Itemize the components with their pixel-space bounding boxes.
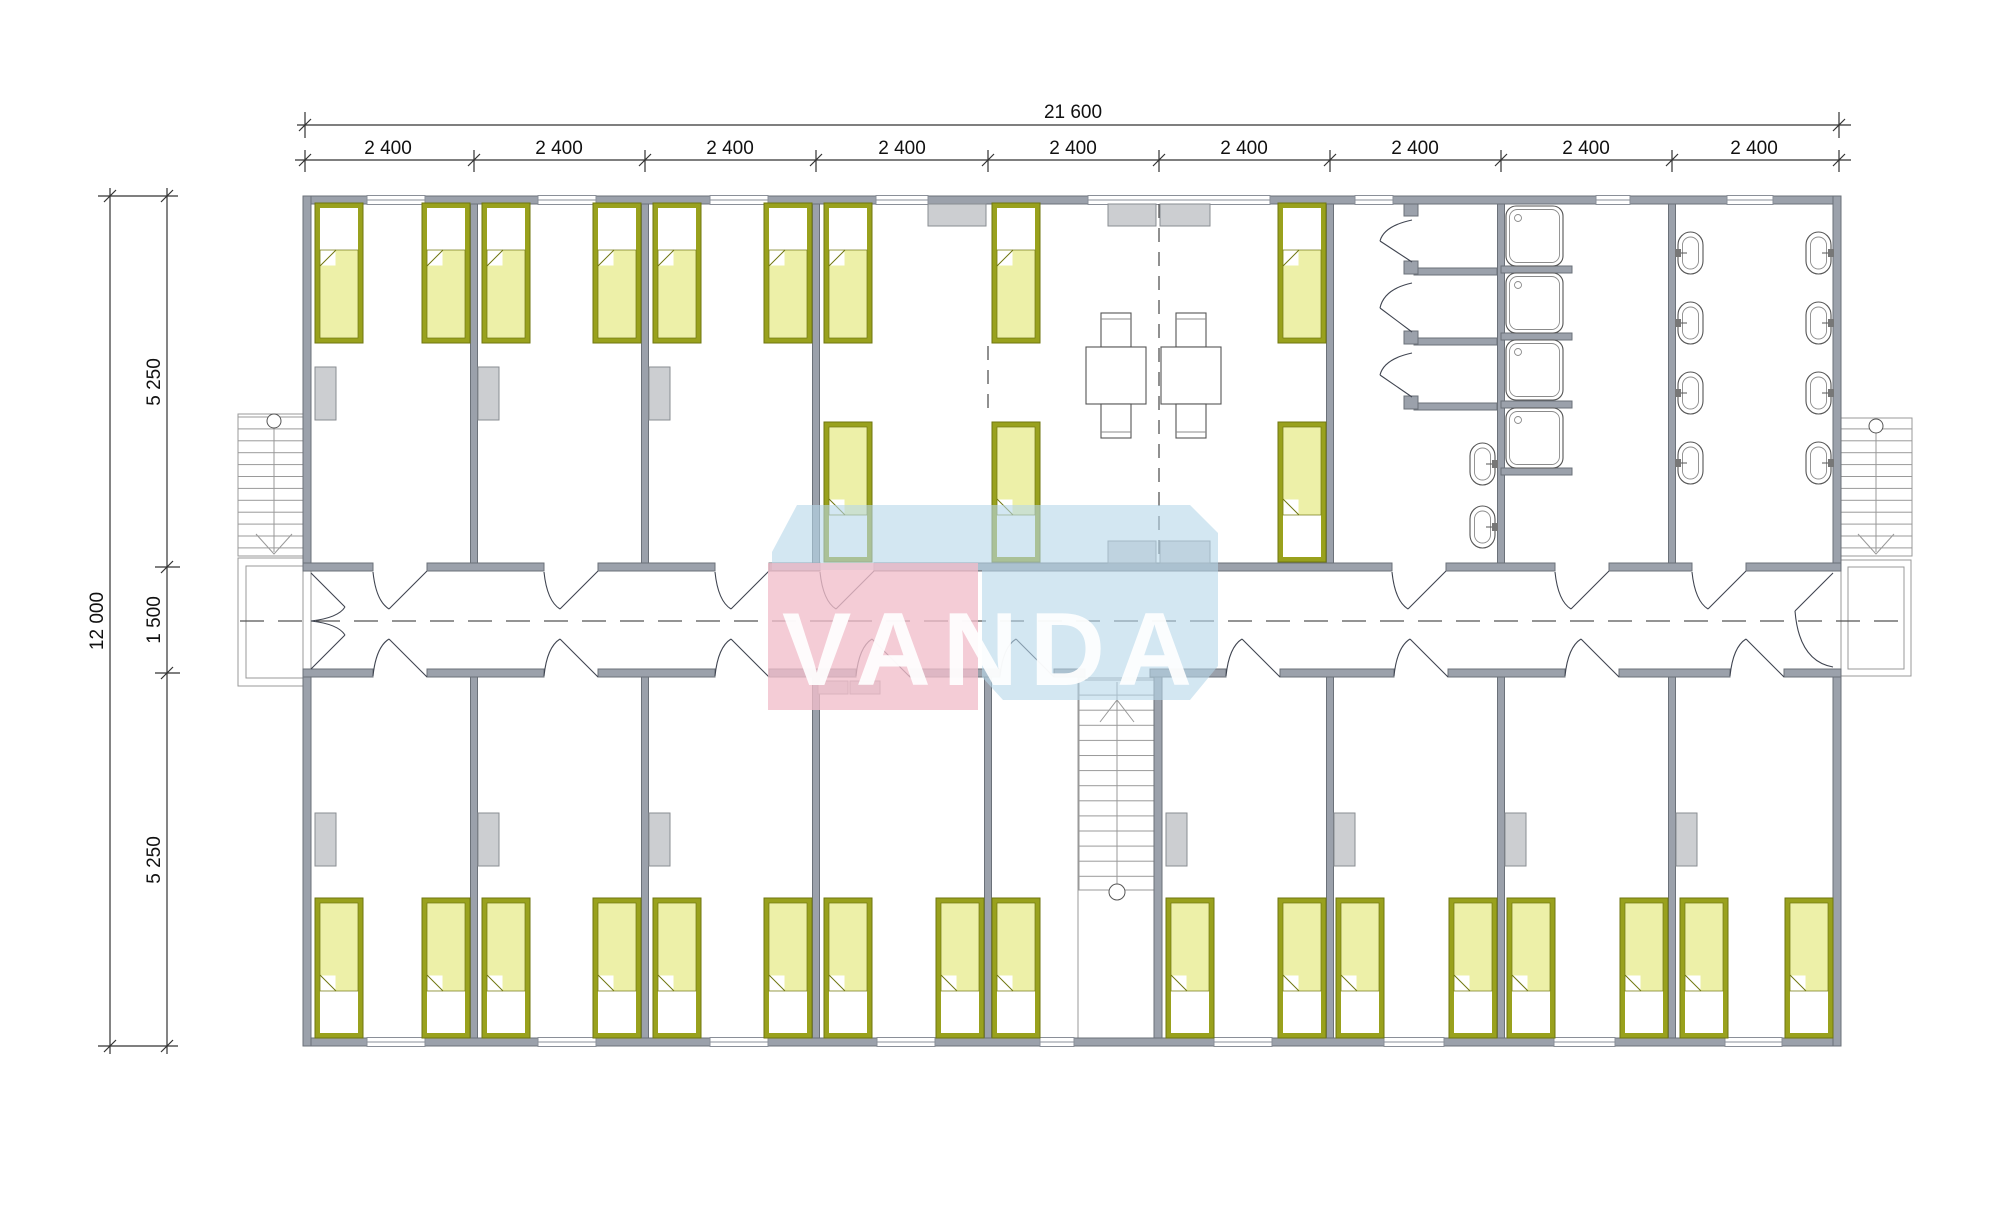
dining-table xyxy=(1086,313,1146,438)
dimension-label: 5 250 xyxy=(144,358,165,406)
bed xyxy=(824,898,872,1038)
dimension-label: 5 250 xyxy=(144,836,165,884)
bed xyxy=(1507,898,1555,1038)
bed xyxy=(653,898,701,1038)
dimension-label: 2 400 xyxy=(1220,138,1268,159)
bed xyxy=(1680,898,1728,1038)
wash-basin xyxy=(1675,302,1703,344)
staircase-left xyxy=(238,414,311,686)
dining-table xyxy=(1161,313,1221,438)
bed xyxy=(1336,898,1384,1038)
wash-basin xyxy=(1675,232,1703,274)
wash-basin xyxy=(1675,372,1703,414)
bed xyxy=(422,898,470,1038)
wash-basin xyxy=(1806,232,1834,274)
bed xyxy=(1278,898,1326,1038)
wash-basin xyxy=(1806,302,1834,344)
shower-tray xyxy=(1506,206,1563,266)
shower-tray xyxy=(1506,340,1563,400)
dimension-label: 2 400 xyxy=(1391,138,1439,159)
dimension-label: 2 400 xyxy=(1562,138,1610,159)
floor-plan-page: 21 600 2 400 2 400 2 400 2 400 2 400 2 4… xyxy=(0,0,2000,1219)
bed xyxy=(1449,898,1497,1038)
dimension-left: 12 000 5 250 1 500 5 250 xyxy=(87,188,180,1054)
dimension-label: 2 400 xyxy=(1049,138,1097,159)
dimension-label: 2 400 xyxy=(364,138,412,159)
dimension-label: 12 000 xyxy=(87,592,108,650)
staircase-right xyxy=(1841,418,1912,676)
watermark: VANDA xyxy=(768,505,1218,710)
dimension-label: 2 400 xyxy=(878,138,926,159)
dimension-label: 21 600 xyxy=(1044,102,1102,123)
wash-basin xyxy=(1675,442,1703,484)
bed xyxy=(824,203,872,343)
bed xyxy=(1620,898,1668,1038)
watermark-text: VANDA xyxy=(782,592,1204,708)
bed xyxy=(593,898,641,1038)
wash-basin xyxy=(1470,506,1498,548)
bed xyxy=(992,203,1040,343)
bed xyxy=(936,898,984,1038)
wash-basin xyxy=(1806,442,1834,484)
bed xyxy=(1785,898,1833,1038)
dimension-label: 2 400 xyxy=(706,138,754,159)
bed xyxy=(482,203,530,343)
shower-tray xyxy=(1506,408,1563,468)
bed xyxy=(593,203,641,343)
bed xyxy=(1278,203,1326,343)
bed xyxy=(482,898,530,1038)
dining-area xyxy=(1086,313,1221,438)
dimension-label: 1 500 xyxy=(144,596,165,644)
bed xyxy=(653,203,701,343)
dimension-label: 2 400 xyxy=(535,138,583,159)
bed xyxy=(1278,422,1326,562)
bed xyxy=(992,898,1040,1038)
bed xyxy=(764,898,812,1038)
bed xyxy=(1166,898,1214,1038)
dimension-top: 21 600 2 400 2 400 2 400 2 400 2 400 2 4… xyxy=(295,102,1851,172)
sanitary-fixtures xyxy=(1470,206,1834,548)
bed xyxy=(422,203,470,343)
wash-basin xyxy=(1470,443,1498,485)
floor-plan: 21 600 2 400 2 400 2 400 2 400 2 400 2 4… xyxy=(0,0,2000,1219)
bed xyxy=(764,203,812,343)
dimension-label: 2 400 xyxy=(1730,138,1778,159)
bed xyxy=(315,203,363,343)
staircase-central xyxy=(1078,677,1154,1038)
wash-basin xyxy=(1806,372,1834,414)
shower-tray xyxy=(1506,273,1563,333)
bed xyxy=(315,898,363,1038)
